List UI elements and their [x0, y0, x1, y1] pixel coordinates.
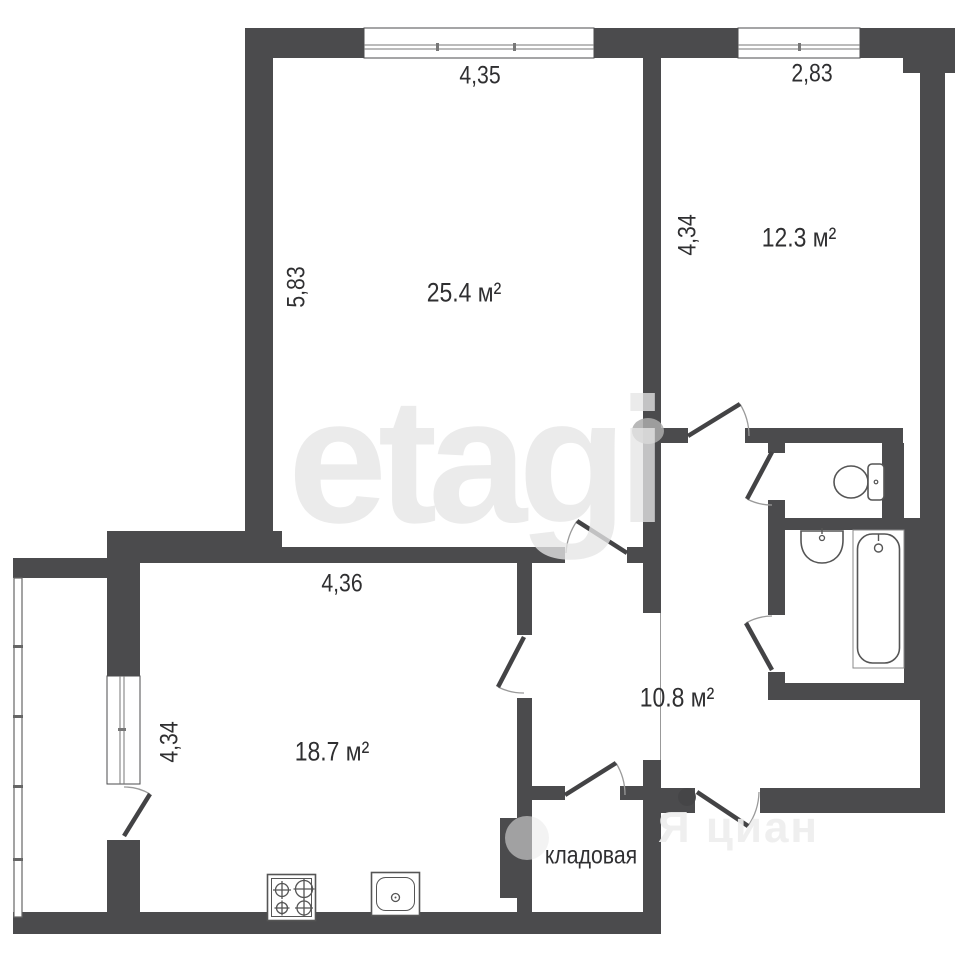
door-bedroom	[688, 404, 749, 436]
watermark-etagi: etagi	[288, 372, 658, 550]
window-kitchen	[107, 676, 140, 784]
dim-living-width: 4,35	[459, 62, 500, 91]
dim-living-height: 5,83	[283, 266, 312, 307]
area-hallway: 10.8 м²	[640, 683, 714, 714]
window-living	[364, 28, 594, 58]
watermark-cian: Я циан	[658, 806, 819, 850]
bathtub-icon	[853, 530, 904, 668]
floor-plan: etagi Я циан 4,35 2,83 5,83 4,34 4,36 4,…	[0, 0, 960, 960]
dim-bedroom-height: 4,34	[674, 214, 703, 255]
dim-bedroom-width: 2,83	[791, 60, 832, 89]
label-storage: кладовая	[545, 842, 637, 871]
door-balcony	[124, 787, 150, 836]
area-bedroom: 12.3 м²	[762, 223, 836, 254]
kitchen-sink-icon	[372, 873, 420, 916]
door-wc	[747, 452, 772, 505]
toilet-icon	[834, 464, 884, 500]
balcony-glazing	[13, 578, 23, 917]
window-bedroom	[738, 28, 860, 58]
stove-icon	[268, 875, 316, 921]
area-living: 25.4 м²	[427, 278, 501, 309]
dim-kitchen-height: 4,34	[156, 721, 185, 762]
door-storage	[565, 763, 625, 795]
door-bathroom	[746, 616, 772, 670]
area-kitchen: 18.7 м²	[295, 737, 369, 768]
door-kitchen	[498, 637, 524, 693]
dim-kitchen-width: 4,36	[321, 570, 362, 599]
bath-sink-icon	[801, 528, 843, 563]
